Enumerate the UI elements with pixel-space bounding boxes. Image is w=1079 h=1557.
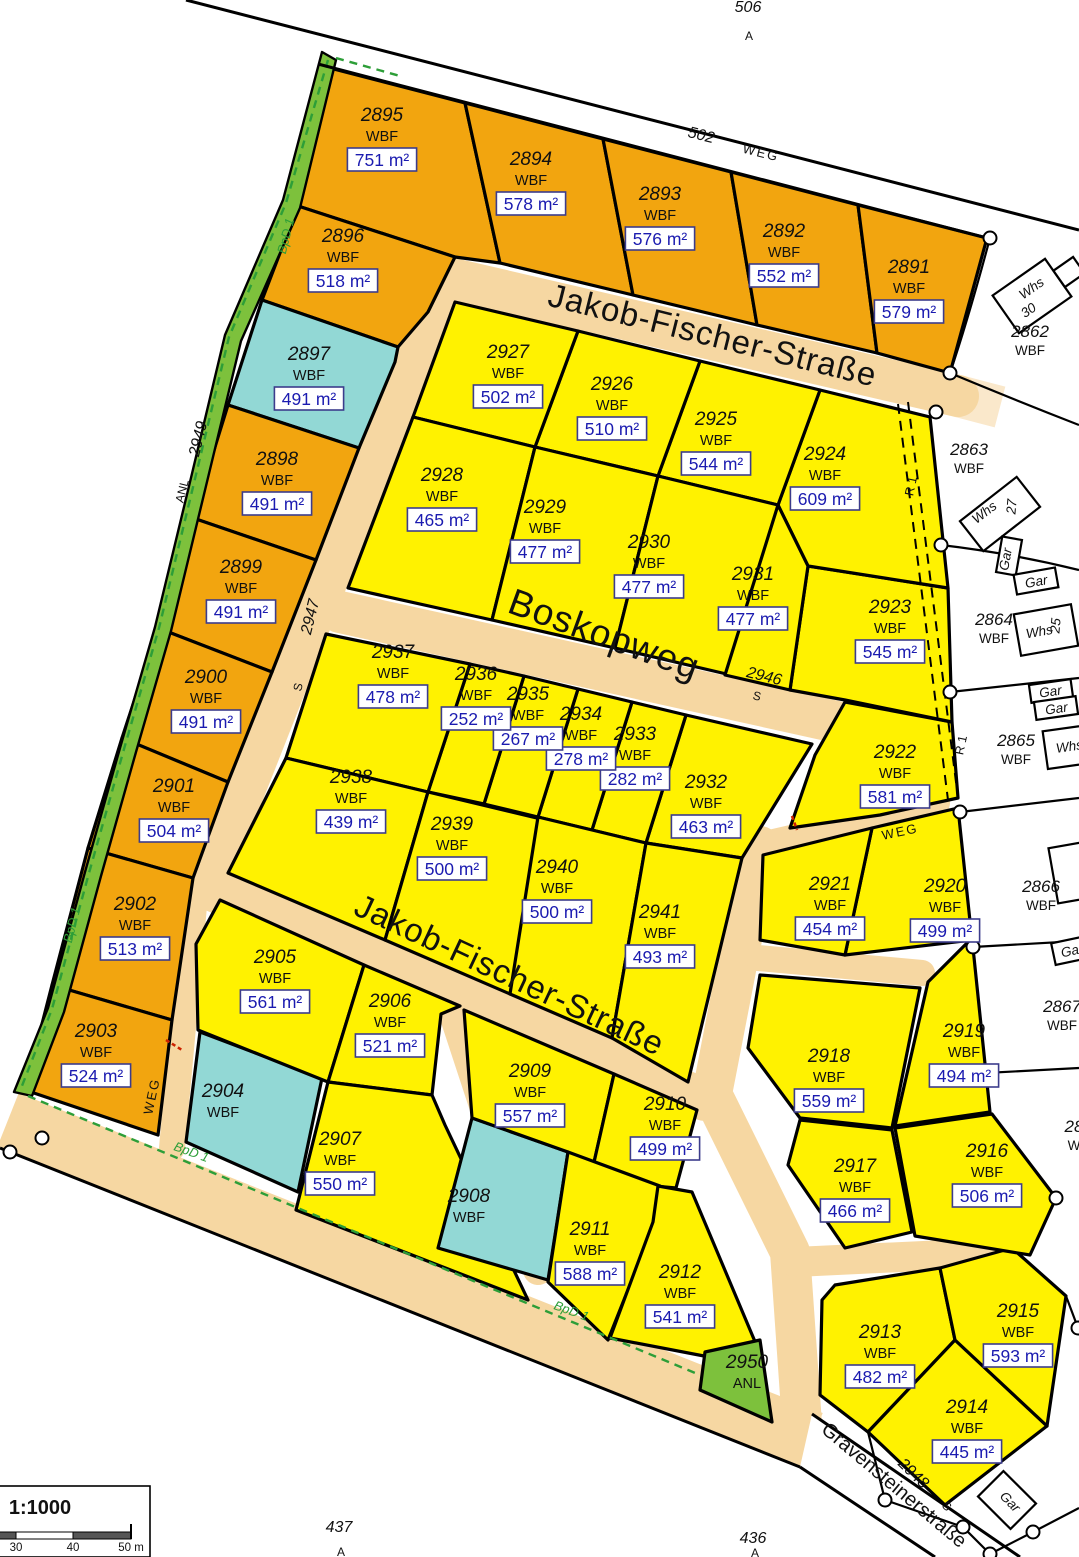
parcel-label-2864: 2864WBF — [974, 610, 1013, 646]
node — [984, 1548, 997, 1557]
parcel-label-2908: 2908WBF — [447, 1186, 491, 1226]
parcel-area: 593 m² — [991, 1346, 1046, 1366]
parcel-number: 2867 — [1042, 997, 1079, 1016]
parcel-number: 2891 — [887, 257, 930, 278]
parcel-number: 2950 — [725, 1352, 769, 1373]
parcel-type: WBF — [893, 281, 925, 297]
label-437: 437 — [326, 1519, 354, 1536]
parcel-number: 2929 — [523, 497, 567, 518]
parcel-area: 500 m² — [425, 859, 480, 879]
parcel-number: 2903 — [74, 1021, 118, 1042]
parcel-area: 504 m² — [147, 821, 202, 841]
parcel-type: WBF — [261, 473, 293, 489]
parcel-number: 2908 — [447, 1186, 491, 1207]
parcel-type: WBF — [514, 1085, 546, 1101]
parcel-area: 465 m² — [415, 510, 470, 530]
parcel-number: 2915 — [996, 1301, 1040, 1322]
parcel-number: 2925 — [694, 409, 738, 430]
parcel-number: 2901 — [152, 776, 195, 797]
parcel-type: WBF — [664, 1286, 696, 1302]
parcel-number: 2919 — [942, 1021, 986, 1042]
parcel-number: 2894 — [509, 149, 552, 170]
scale-bar-segment — [0, 1532, 16, 1539]
parcel-number: 2911 — [569, 1219, 611, 1240]
node — [930, 406, 943, 419]
scale-tick-30: 30 — [10, 1542, 23, 1554]
parcel-number: 2904 — [201, 1081, 244, 1102]
parcel-type: WBF — [190, 691, 222, 707]
street-nub-east — [758, 958, 922, 973]
parcel-number: 2928 — [420, 465, 464, 486]
parcel-type: WBF — [492, 366, 524, 382]
parcel-type: WBF — [327, 250, 359, 266]
parcel-number: 28 — [1064, 1117, 1079, 1136]
parcel-type: WBF — [1015, 343, 1045, 358]
cadastral-map: 506 A 502 WEG Jakob-Fischer-Straße Jakob… — [0, 0, 1079, 1557]
parcel-number: 2920 — [923, 876, 967, 897]
parcel-type: WBF — [1001, 752, 1031, 767]
parcel-number: 2932 — [684, 772, 728, 793]
parcel-area: 561 m² — [248, 992, 303, 1012]
parcel-number: 2927 — [486, 342, 531, 363]
parcel-area: 252 m² — [449, 709, 504, 729]
parcel-type: WBF — [324, 1153, 356, 1169]
parcel-area: 751 m² — [355, 150, 410, 170]
node — [944, 686, 957, 699]
node — [954, 806, 967, 819]
parcel-number: 2934 — [559, 704, 602, 725]
parcel-area: 482 m² — [853, 1367, 908, 1387]
parcel-number: 2930 — [627, 532, 671, 553]
label-whs25-num: 25 — [1047, 617, 1063, 635]
parcel-area: 576 m² — [633, 229, 688, 249]
parcel-type: WBF — [80, 1045, 112, 1061]
parcel-number: 2940 — [535, 857, 579, 878]
parcel-number: 2936 — [454, 664, 498, 685]
parcel-number: 2935 — [506, 684, 550, 705]
parcel-number: 2912 — [658, 1262, 702, 1283]
parcel-type: WBF — [633, 556, 665, 572]
parcel-area: 521 m² — [363, 1036, 418, 1056]
node — [1072, 1322, 1079, 1335]
parcel-area: 609 m² — [798, 489, 853, 509]
node — [935, 539, 948, 552]
parcel-area: 477 m² — [518, 542, 573, 562]
node — [984, 232, 997, 245]
parcel-number: 2922 — [873, 742, 917, 763]
label-whs-2865: Whs — [1055, 737, 1079, 756]
parcel-type: WBF — [541, 881, 573, 897]
parcel-area: 478 m² — [366, 687, 421, 707]
parcel-area: 578 m² — [504, 194, 559, 214]
parcel-type: WBF — [948, 1045, 980, 1061]
parcel-area: 491 m² — [214, 602, 269, 622]
parcel-number: 2905 — [253, 947, 297, 968]
parcel-label-2867: 2867WBF — [1042, 997, 1079, 1033]
parcel-type: WBF — [700, 433, 732, 449]
parcel-area: 477 m² — [622, 577, 677, 597]
node — [1050, 1192, 1063, 1205]
parcel-type: WBF — [596, 398, 628, 414]
parcel-number: 2937 — [371, 642, 416, 663]
parcel-type: WBF — [436, 838, 468, 854]
parcel-number: 2863 — [949, 440, 988, 459]
parcel-area: 491 m² — [250, 494, 305, 514]
parcel-type: WBF — [954, 461, 984, 476]
parcel-number: 2926 — [590, 374, 634, 395]
parcel-type: WBF — [813, 1070, 845, 1086]
parcel-number: 2898 — [255, 449, 299, 470]
scale-bar-segment — [73, 1532, 131, 1539]
parcel-area: 466 m² — [828, 1201, 883, 1221]
scale-bar-segment — [16, 1532, 73, 1539]
parcel-type: WBF — [649, 1118, 681, 1134]
parcel-type: WBF — [426, 489, 458, 505]
parcel-type: WBF — [574, 1243, 606, 1259]
parcel-number: 2918 — [807, 1046, 851, 1067]
parcel-type: WBF — [690, 796, 722, 812]
scale-ratio: 1:1000 — [9, 1497, 71, 1519]
parcel-number: 2909 — [508, 1061, 552, 1082]
parcel-number: 2924 — [803, 444, 846, 465]
label-436: 436 — [740, 1530, 767, 1547]
parcel-number: 2896 — [321, 226, 365, 247]
parcel-label-2865: 2865WBF — [996, 731, 1035, 767]
parcel-area: 541 m² — [653, 1307, 708, 1327]
parcel-area: 557 m² — [503, 1106, 558, 1126]
parcel-type: WBF — [979, 631, 1009, 646]
parcel-area: 579 m² — [882, 302, 937, 322]
parcel-type: WBF — [293, 368, 325, 384]
parcel-area: 463 m² — [679, 817, 734, 837]
parcel-type: WBF — [366, 129, 398, 145]
parcel-number: 2938 — [329, 767, 373, 788]
parcel-type: WBF — [814, 898, 846, 914]
parcel-number: 2917 — [833, 1156, 878, 1177]
parcel-type: WBF — [335, 791, 367, 807]
label-436-a: A — [751, 1546, 759, 1557]
parcel-area: 524 m² — [69, 1066, 124, 1086]
parcel-area: 493 m² — [633, 947, 688, 967]
parcel-number: 2907 — [318, 1129, 363, 1150]
parcel-number: 2897 — [287, 344, 332, 365]
parcel-type: WBF — [874, 621, 906, 637]
parcel-type: WBF — [644, 208, 676, 224]
parcel-type: WBF — [1026, 898, 1056, 913]
parcel-area: 477 m² — [726, 609, 781, 629]
parcel-number: 2862 — [1010, 322, 1049, 341]
parcel-number: 2916 — [965, 1141, 1009, 1162]
parcel-label-2866: 2866WBF — [1021, 877, 1060, 913]
parcel-label-2904: 2904WBF — [201, 1081, 244, 1121]
parcel-area: 278 m² — [554, 749, 609, 769]
parcel-number: 2941 — [638, 902, 681, 923]
parcel-area: 559 m² — [802, 1091, 857, 1111]
parcel-area: 552 m² — [757, 266, 812, 286]
parcel-type: WBF — [259, 971, 291, 987]
label-437-a: A — [337, 1545, 345, 1557]
parcel-number: 2899 — [219, 557, 263, 578]
parcel-label-2863: 2863WBF — [949, 440, 988, 476]
parcel-type: WBF — [529, 521, 561, 537]
parcel-area: 282 m² — [608, 769, 663, 789]
parcel-number: 2923 — [868, 597, 912, 618]
label-gar-d: Gar — [1044, 699, 1069, 717]
parcel-number: 2892 — [762, 221, 806, 242]
parcel-type: WBF — [839, 1180, 871, 1196]
parcel-area: 506 m² — [960, 1186, 1015, 1206]
parcel-number: 2931 — [731, 564, 774, 585]
parcel-number: 2933 — [613, 724, 657, 745]
parcel-area: 544 m² — [689, 454, 744, 474]
parcel-type: WBF — [809, 468, 841, 484]
parcel-area: 500 m² — [530, 902, 585, 922]
parcel-area: 545 m² — [863, 642, 918, 662]
parcel-area: 454 m² — [803, 919, 858, 939]
parcel-type: WBF — [864, 1346, 896, 1362]
node — [1027, 1526, 1040, 1539]
parcel-type: WBF — [951, 1421, 983, 1437]
parcel-type: WBF — [768, 245, 800, 261]
parcel-number: 2893 — [638, 184, 682, 205]
node — [944, 367, 957, 380]
parcel-type: WBF — [207, 1105, 239, 1121]
parcel-type: WBF — [737, 588, 769, 604]
parcel-number: 2902 — [113, 894, 157, 915]
parcel-type: WBF — [515, 173, 547, 189]
parcel-area: 494 m² — [937, 1066, 992, 1086]
parcel-number: 2939 — [430, 814, 474, 835]
parcel-type: WBF — [1047, 1018, 1077, 1033]
parcel-type: ANL — [733, 1376, 761, 1392]
parcel-type: WBF — [971, 1165, 1003, 1181]
parcel-number: 2913 — [858, 1322, 902, 1343]
parcel-area: 439 m² — [324, 812, 379, 832]
label-506-a: A — [745, 29, 753, 43]
parcel-area: 491 m² — [179, 712, 234, 732]
parcel-type: WBF — [453, 1210, 485, 1226]
parcel-type: WBF — [374, 1015, 406, 1031]
parcel-number: 2865 — [996, 731, 1035, 750]
parcel-type: WBF — [158, 800, 190, 816]
scale-tick-40: 40 — [67, 1542, 80, 1554]
parcel-type: W — [1068, 1138, 1079, 1153]
parcel-area: 499 m² — [638, 1139, 693, 1159]
parcel-type: WBF — [929, 900, 961, 916]
parcel-number: 2910 — [643, 1094, 687, 1115]
parcel-type: WBF — [1002, 1325, 1034, 1341]
parcel-number: 2900 — [184, 667, 228, 688]
label-gar-c: Gar — [1038, 682, 1063, 700]
scale-tick-50: 50 m — [118, 1542, 144, 1554]
parcel-label-2862: 2862WBF — [1010, 322, 1049, 358]
parcel-type: WBF — [512, 708, 544, 724]
parcel-area: 513 m² — [108, 939, 163, 959]
label-506: 506 — [735, 0, 762, 16]
parcel-number: 2864 — [974, 610, 1013, 629]
parcel-type: WBF — [225, 581, 257, 597]
parcel-number: 2921 — [808, 874, 851, 895]
node — [36, 1132, 49, 1145]
parcel-type: WBF — [879, 766, 911, 782]
parcel-type: WBF — [119, 918, 151, 934]
parcel-area: 550 m² — [313, 1174, 368, 1194]
parcel-type: WBF — [460, 688, 492, 704]
parcel-area: 445 m² — [940, 1442, 995, 1462]
parcel-area: 588 m² — [563, 1264, 618, 1284]
scale-box: 1:1000 30 40 50 m — [0, 1486, 150, 1557]
parcel-number: 2895 — [360, 105, 404, 126]
parcel-area: 502 m² — [481, 387, 536, 407]
parcel-area: 499 m² — [918, 921, 973, 941]
parcel-area: 581 m² — [868, 787, 923, 807]
parcel-area: 510 m² — [585, 419, 640, 439]
parcel-type: WBF — [619, 748, 651, 764]
parcel-type: WBF — [644, 926, 676, 942]
parcel-area: 518 m² — [316, 271, 371, 291]
parcel-area: 267 m² — [501, 729, 556, 749]
parcel-number: 2914 — [945, 1397, 988, 1418]
parcel-number: 2906 — [368, 991, 412, 1012]
node — [4, 1146, 17, 1159]
parcel-area: 491 m² — [282, 389, 337, 409]
parcel-type: WBF — [565, 728, 597, 744]
parcel-number: 2866 — [1021, 877, 1060, 896]
label-whs27-num: 27 — [1003, 498, 1019, 516]
parcel-type: WBF — [377, 666, 409, 682]
